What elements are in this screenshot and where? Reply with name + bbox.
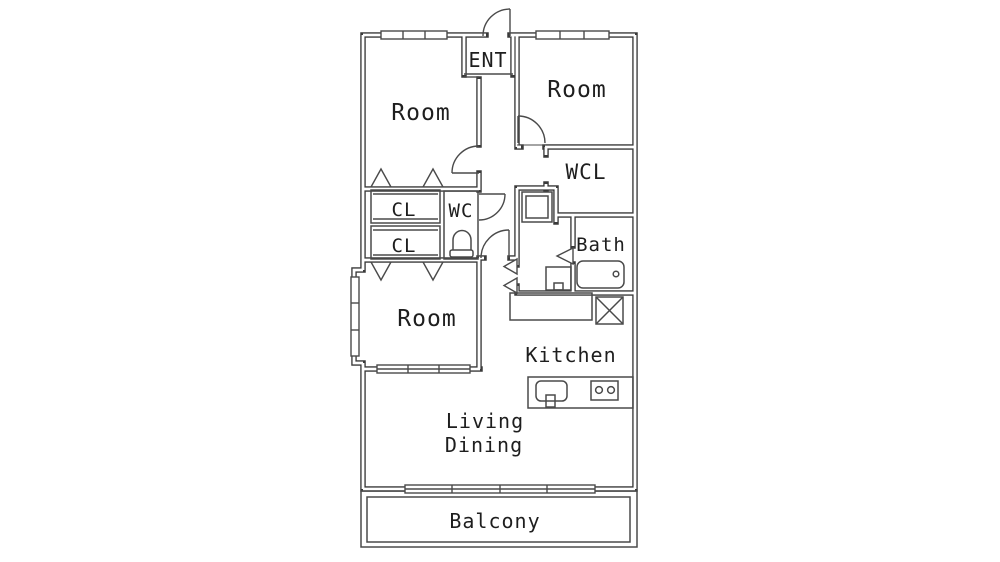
label-living: Living xyxy=(446,409,524,433)
bay-window-room-sw xyxy=(351,277,359,356)
sliding-window-living-balcony xyxy=(405,485,595,493)
entry-step-lines xyxy=(464,74,513,77)
folding-door-bath xyxy=(557,248,573,264)
entrance-door-arc xyxy=(483,9,510,36)
label-kitchen: Kitchen xyxy=(525,343,616,367)
label-room-sw: Room xyxy=(397,306,456,332)
label-bath: Bath xyxy=(576,234,626,256)
door-hall-living xyxy=(481,230,509,258)
refrigerator-space-icon xyxy=(596,297,623,324)
kitchen-counter xyxy=(528,377,633,408)
label-room-nw: Room xyxy=(391,100,450,126)
label-cl-lower: CL xyxy=(392,235,417,257)
window-room-ne xyxy=(536,31,609,39)
closet-fold-marks-room-sw xyxy=(371,262,443,280)
kitchen-cabinet xyxy=(510,293,592,320)
label-ent: ENT xyxy=(468,48,507,72)
closet-fold-marks-room-nw xyxy=(371,169,443,187)
label-wc: WC xyxy=(449,200,474,222)
sink-icon xyxy=(536,381,567,407)
door-wc xyxy=(479,194,505,220)
floor-plan-drawing: ENT Room Room WCL CL CL WC Bath Room Kit… xyxy=(0,0,1000,562)
label-balcony: Balcony xyxy=(449,509,540,533)
label-dining: Dining xyxy=(445,433,523,457)
sliding-door-room-sw xyxy=(377,365,470,373)
washing-machine-icon xyxy=(522,192,552,222)
bathtub-icon xyxy=(577,261,624,288)
door-room-nw xyxy=(452,146,479,173)
washbasin-icon xyxy=(546,267,571,290)
label-cl-upper: CL xyxy=(392,199,417,221)
label-wcl: WCL xyxy=(566,160,607,184)
toilet-icon xyxy=(450,231,473,257)
door-room-ne xyxy=(517,116,546,145)
stove-icon xyxy=(591,381,618,400)
folding-door-washroom xyxy=(504,259,517,293)
floor-plan-canvas: ENT Room Room WCL CL CL WC Bath Room Kit… xyxy=(0,0,1000,562)
label-room-ne: Room xyxy=(547,77,606,103)
window-room-nw xyxy=(381,31,447,39)
